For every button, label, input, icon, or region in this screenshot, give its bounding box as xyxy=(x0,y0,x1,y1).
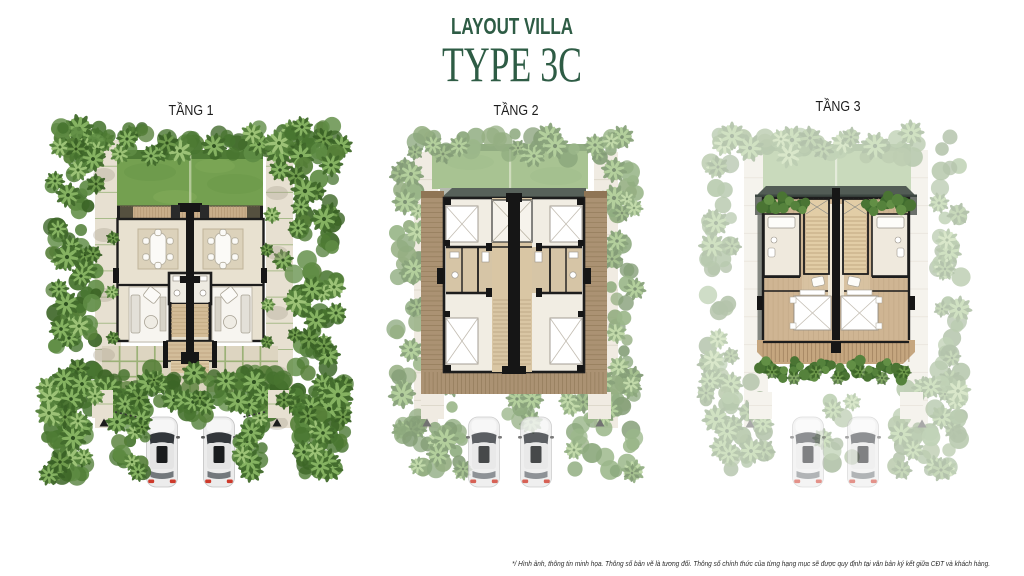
svg-text:TẦNG 2: TẦNG 2 xyxy=(494,102,539,119)
svg-text:*/ Hình ảnh, thông tin minh họ: */ Hình ảnh, thông tin minh họa. Thông s… xyxy=(512,559,990,568)
svg-text:TẦNG 1: TẦNG 1 xyxy=(169,102,214,119)
svg-text:TYPE 3C: TYPE 3C xyxy=(442,36,582,92)
svg-text:TẦNG 3: TẦNG 3 xyxy=(816,98,861,115)
